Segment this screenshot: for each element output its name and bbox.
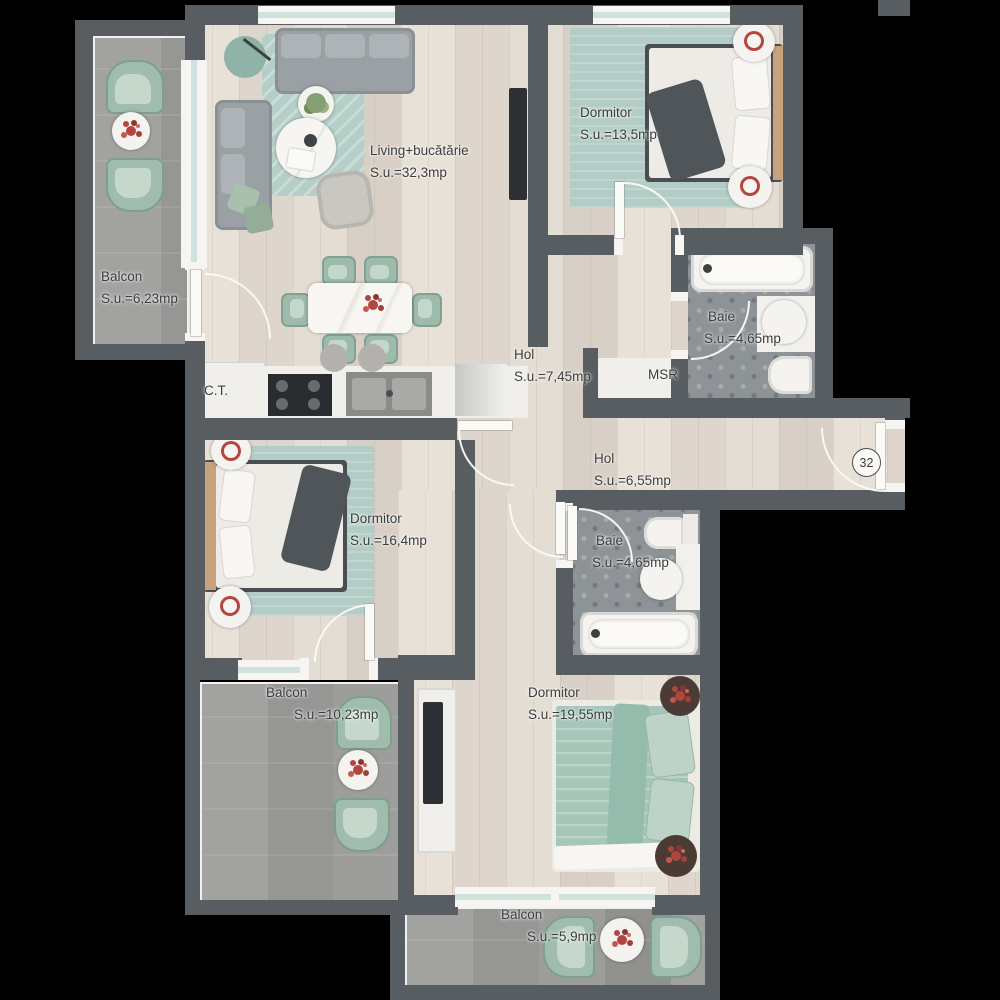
wall [671, 228, 833, 244]
apartment-number-badge: 32 [852, 448, 881, 477]
side-table-lamp [671, 851, 681, 861]
room-label-dormitor1: Dormitor S.u.=13,5mp [580, 102, 657, 145]
dining-chair [412, 293, 442, 327]
wall [705, 905, 720, 1000]
wall [185, 440, 205, 660]
balcony-armchair [650, 916, 702, 978]
room-area: S.u.=6,23mp [101, 288, 178, 310]
room-name: Dormitor [580, 102, 657, 124]
bed2-headboard [205, 462, 216, 590]
room-name: Hol [514, 344, 591, 366]
wall [75, 344, 187, 360]
coffee-cup [304, 134, 317, 147]
bath2-tub [580, 612, 698, 656]
balcony-armchair [106, 158, 164, 212]
room-name: Balcon [101, 266, 178, 288]
wall [556, 655, 716, 675]
door-jamb [556, 560, 573, 568]
room-area: S.u.=4,65mp [592, 552, 669, 574]
wall [700, 490, 905, 510]
room-name: Dormitor [528, 682, 612, 704]
room-name: Living+bucătărie [370, 140, 469, 162]
fridge [455, 364, 507, 416]
wall [185, 680, 200, 915]
bed3-pillow [644, 709, 696, 779]
bed1-headboard [773, 46, 783, 180]
room-label-balcon2: Balcon S.u.=10,23mp [266, 682, 378, 725]
room-area: S.u.=32,3mp [370, 162, 469, 184]
wall [398, 895, 458, 915]
room-name: Baie [708, 306, 781, 328]
wall [75, 20, 187, 36]
room-label-hol2: Hol S.u.=6,55mp [594, 448, 671, 491]
bed1-pillow [731, 55, 772, 112]
cooktop [268, 374, 332, 416]
room-name: Balcon [266, 682, 378, 704]
nightstand-lamp [220, 596, 240, 616]
room-label-hol1: Hol S.u.=7,45mp [514, 344, 591, 387]
living-tv [509, 88, 527, 200]
wall [815, 235, 833, 402]
room-label-ct: C.T. [204, 380, 228, 402]
room-name: Dormitor [350, 508, 427, 530]
floor-pillow [242, 202, 274, 234]
dining-chair [322, 256, 356, 286]
room-area: S.u.=13,5mp [580, 124, 657, 146]
plant [306, 93, 326, 113]
balcony-flowers [617, 935, 627, 945]
balcony-armchair [334, 798, 390, 852]
door-leaf [615, 182, 624, 238]
room-area: S.u.=16,4mp [350, 530, 427, 552]
dining-chair [364, 256, 398, 286]
bedroom3-tv [423, 702, 443, 804]
wall [455, 440, 475, 680]
balcony-flowers [353, 765, 363, 775]
door-jamb [885, 483, 905, 492]
bedroom2-balcony-window [238, 660, 308, 680]
sofa [275, 28, 415, 94]
dining-chair [281, 293, 311, 327]
tub-faucet [591, 629, 600, 638]
room-area: S.u.=7,45mp [514, 366, 591, 388]
room-area: S.u.=19,55mp [528, 704, 612, 726]
room-area: S.u.=4,65mp [704, 328, 781, 350]
nightstand-lamp [740, 176, 760, 196]
room-label-dormitor2: Dormitor S.u.=16,4mp [350, 508, 427, 551]
wall [528, 25, 548, 347]
nightstand-lamp [744, 31, 764, 51]
room-label-dormitor3: Dormitor S.u.=19,55mp [528, 682, 612, 725]
room-name: MSR [648, 364, 678, 386]
tub-faucet [703, 264, 712, 273]
room-name: Hol [594, 448, 671, 470]
door-leaf [191, 270, 201, 336]
wall [185, 418, 457, 440]
room-label-msr: MSR [648, 364, 678, 386]
wall [556, 490, 716, 510]
bed2-pillow [218, 468, 256, 524]
room-label-balcon3: Balcon S.u.=5,9mp [501, 904, 596, 947]
wall [556, 563, 573, 655]
wall [185, 658, 242, 680]
wall [185, 900, 413, 915]
room-label-baie2: Baie S.u.=4,65mp [596, 530, 669, 573]
room-label-balcon1: Balcon S.u.=6,23mp [101, 266, 178, 309]
door-jamb [300, 658, 309, 680]
wall [583, 398, 910, 418]
book [287, 148, 316, 171]
floor-plan: 32 Living+bucătărie S.u.=32,3mp Dormitor… [0, 0, 1000, 1000]
wall [185, 21, 205, 63]
wall [700, 490, 720, 915]
door-jamb [671, 350, 688, 359]
door-jamb [614, 235, 623, 255]
room-name: Baie [596, 530, 669, 552]
room-area: S.u.=10,23mp [294, 704, 378, 726]
wall [414, 655, 475, 675]
door-leaf [458, 421, 512, 430]
room-label-baie1: Baie S.u.=4,65mp [708, 306, 781, 349]
door-jamb [185, 262, 205, 270]
bed2-pillow [218, 524, 255, 579]
wall [548, 235, 622, 255]
bed1-frame [645, 44, 783, 182]
table-flowers [368, 300, 378, 310]
wall [878, 0, 910, 16]
room-label-living: Living+bucătărie S.u.=32,3mp [370, 140, 469, 183]
dining-table [308, 283, 412, 333]
bedroom1-window [593, 6, 730, 24]
bed1-pillow [731, 115, 772, 172]
door-jamb [885, 420, 905, 429]
armchair [314, 169, 375, 232]
bed3-pillow [645, 778, 695, 844]
living-window [258, 6, 395, 24]
bar-stool [320, 344, 348, 372]
door-jamb [671, 292, 688, 301]
balcony-flowers [126, 126, 136, 136]
room-area: S.u.=6,55mp [594, 470, 671, 492]
room-name: C.T. [204, 380, 228, 402]
side-table-lamp [675, 691, 685, 701]
room-name: Balcon [501, 904, 596, 926]
balcony-armchair [106, 60, 164, 114]
wall [185, 335, 205, 420]
coffee-table [276, 118, 336, 178]
bath1-toilet [768, 356, 812, 394]
room-area: S.u.=5,9mp [527, 926, 596, 948]
wall [390, 985, 720, 1000]
wall [398, 655, 414, 915]
bar-stool [358, 344, 386, 372]
balcony1-window [181, 60, 207, 268]
wall [783, 5, 803, 237]
apartment-number: 32 [860, 456, 874, 470]
wall [75, 20, 93, 360]
door-leaf [568, 506, 577, 560]
kitchen-sink [346, 372, 432, 416]
nightstand-lamp [221, 441, 241, 461]
bed2-frame [203, 460, 347, 592]
